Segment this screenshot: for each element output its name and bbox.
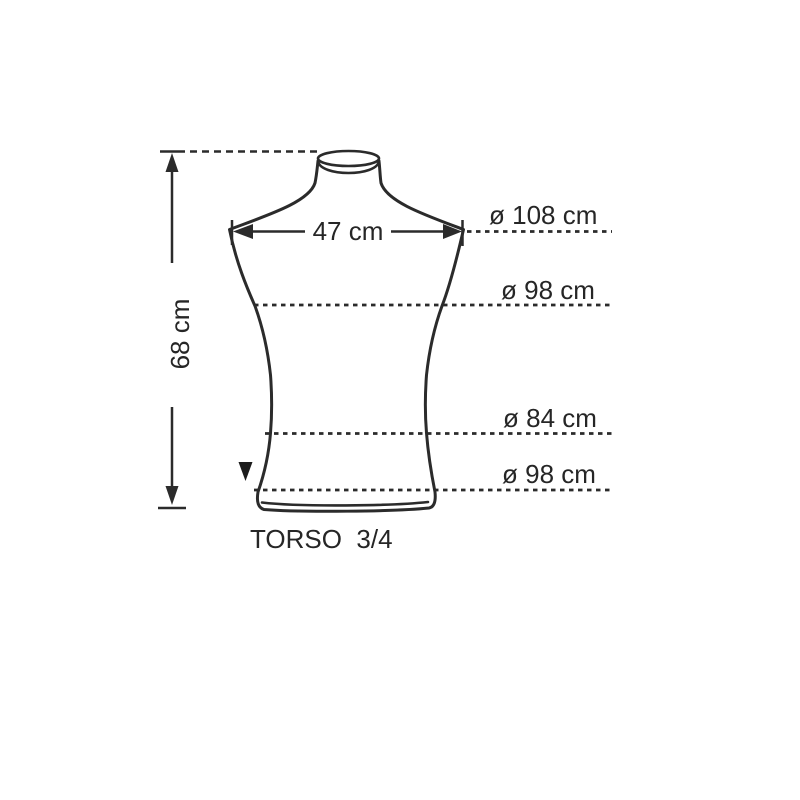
height-label: 68 cm <box>167 299 193 370</box>
height-dim-arrow-down <box>166 486 179 505</box>
shoulder-width-label: 47 cm <box>313 218 384 244</box>
diagram-title: TORSO 3/4 <box>250 526 393 552</box>
circumference-label-waist: ø 84 cm <box>503 405 597 431</box>
torso-outline <box>230 161 464 511</box>
hip-marker-triangle <box>239 462 253 481</box>
circumference-label-shoulders: ø 108 cm <box>489 202 597 228</box>
torso-measurement-diagram: 68 cm 47 cm ø 108 cm ø 98 cm ø 84 cm ø 9… <box>0 0 800 800</box>
circumference-label-hip: ø 98 cm <box>502 461 596 487</box>
neck-cap-ellipse <box>318 151 379 166</box>
circumference-label-chest: ø 98 cm <box>501 277 595 303</box>
diagram-canvas <box>0 0 800 800</box>
